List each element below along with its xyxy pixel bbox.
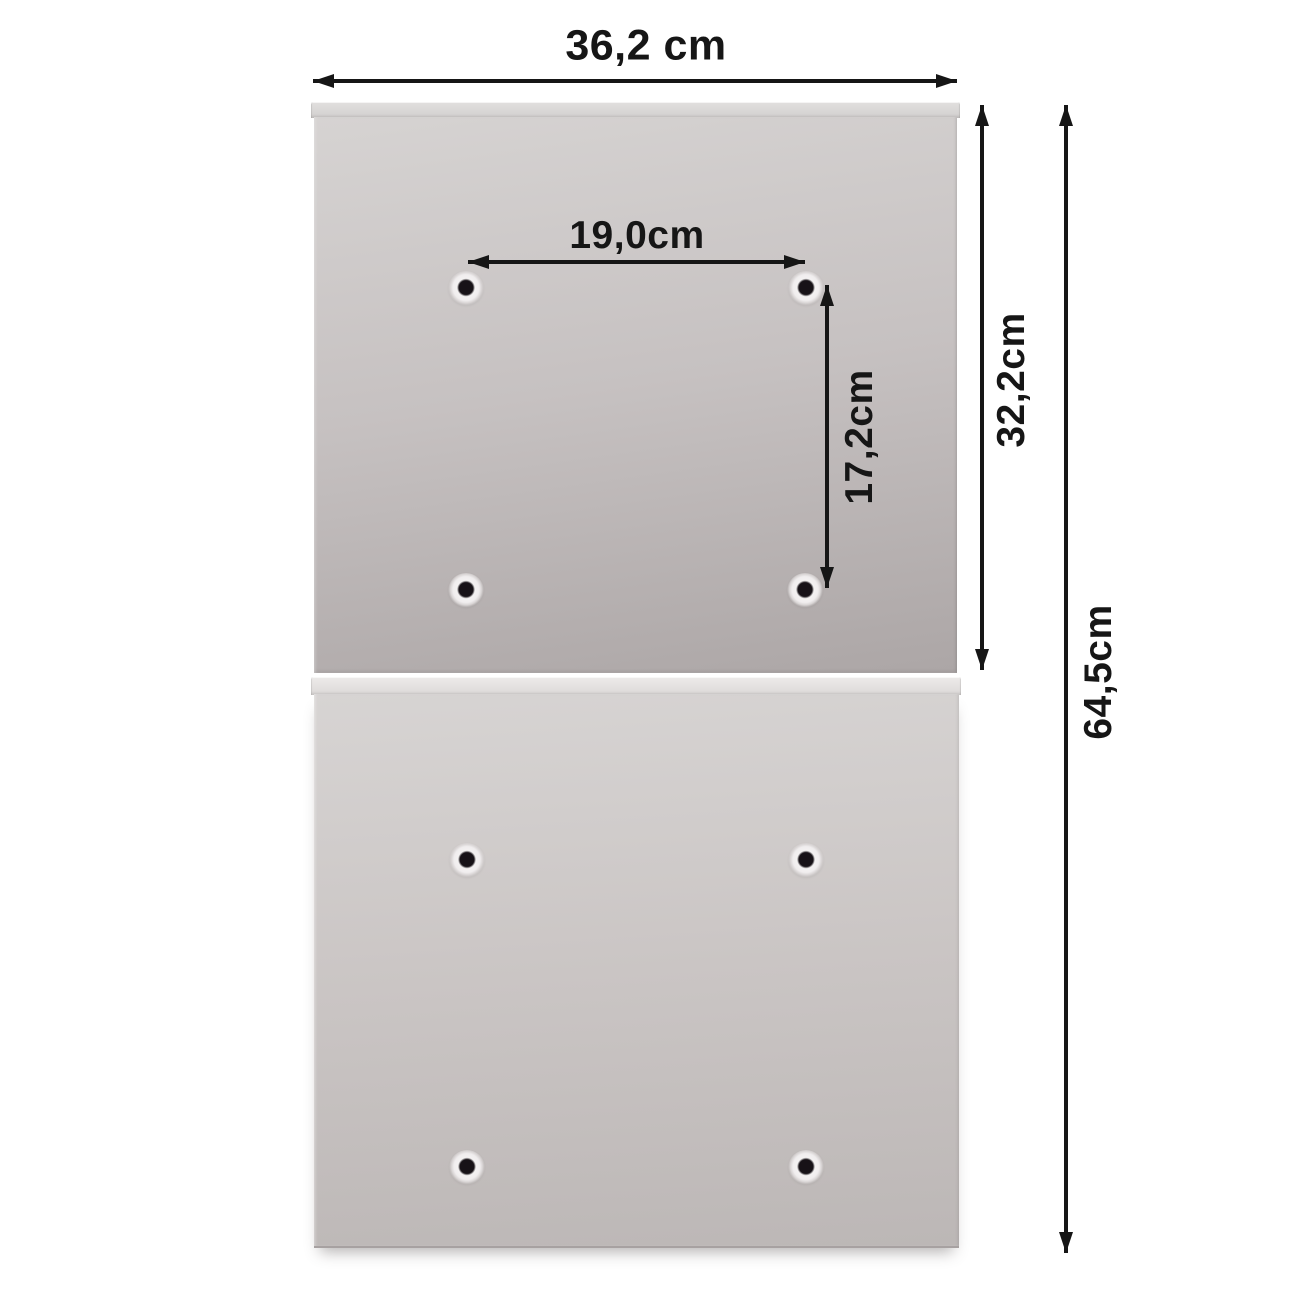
- mounting-hole-lower-bottom-right: [788, 1150, 824, 1186]
- total-height-arrow: [1064, 105, 1068, 1253]
- hole-spacing-vertical-arrow: [825, 285, 829, 588]
- mounting-hole-lower-bottom-left: [449, 1150, 485, 1186]
- mounting-hole-upper-bottom-right: [787, 573, 823, 609]
- mounting-hole-upper-top-left: [448, 271, 484, 307]
- hole-spacing-horizontal-arrow: [468, 260, 805, 264]
- lower-panel-lip: [311, 677, 961, 695]
- total-width-label: 36,2 cm: [565, 22, 726, 71]
- mounting-hole-lower-top-right: [788, 843, 824, 879]
- total-width-arrow: [313, 79, 957, 83]
- mounting-hole-upper-bottom-left: [448, 573, 484, 609]
- hole-spacing-horizontal-label: 19,0cm: [569, 214, 704, 258]
- total-height-label: 64,5cm: [1077, 604, 1121, 739]
- lower-panel: [314, 694, 959, 1248]
- product-dimension-diagram: 36,2 cm 19,0cm 17,2cm 32,2cm 64,5cm: [0, 0, 1300, 1300]
- upper-panel-lip: [311, 102, 960, 118]
- upper-panel-height-label: 32,2cm: [990, 312, 1034, 447]
- hole-spacing-vertical-label: 17,2cm: [838, 369, 882, 504]
- mounting-hole-lower-top-left: [449, 843, 485, 879]
- mounting-hole-upper-top-right: [788, 271, 824, 307]
- upper-panel-height-arrow: [980, 105, 984, 670]
